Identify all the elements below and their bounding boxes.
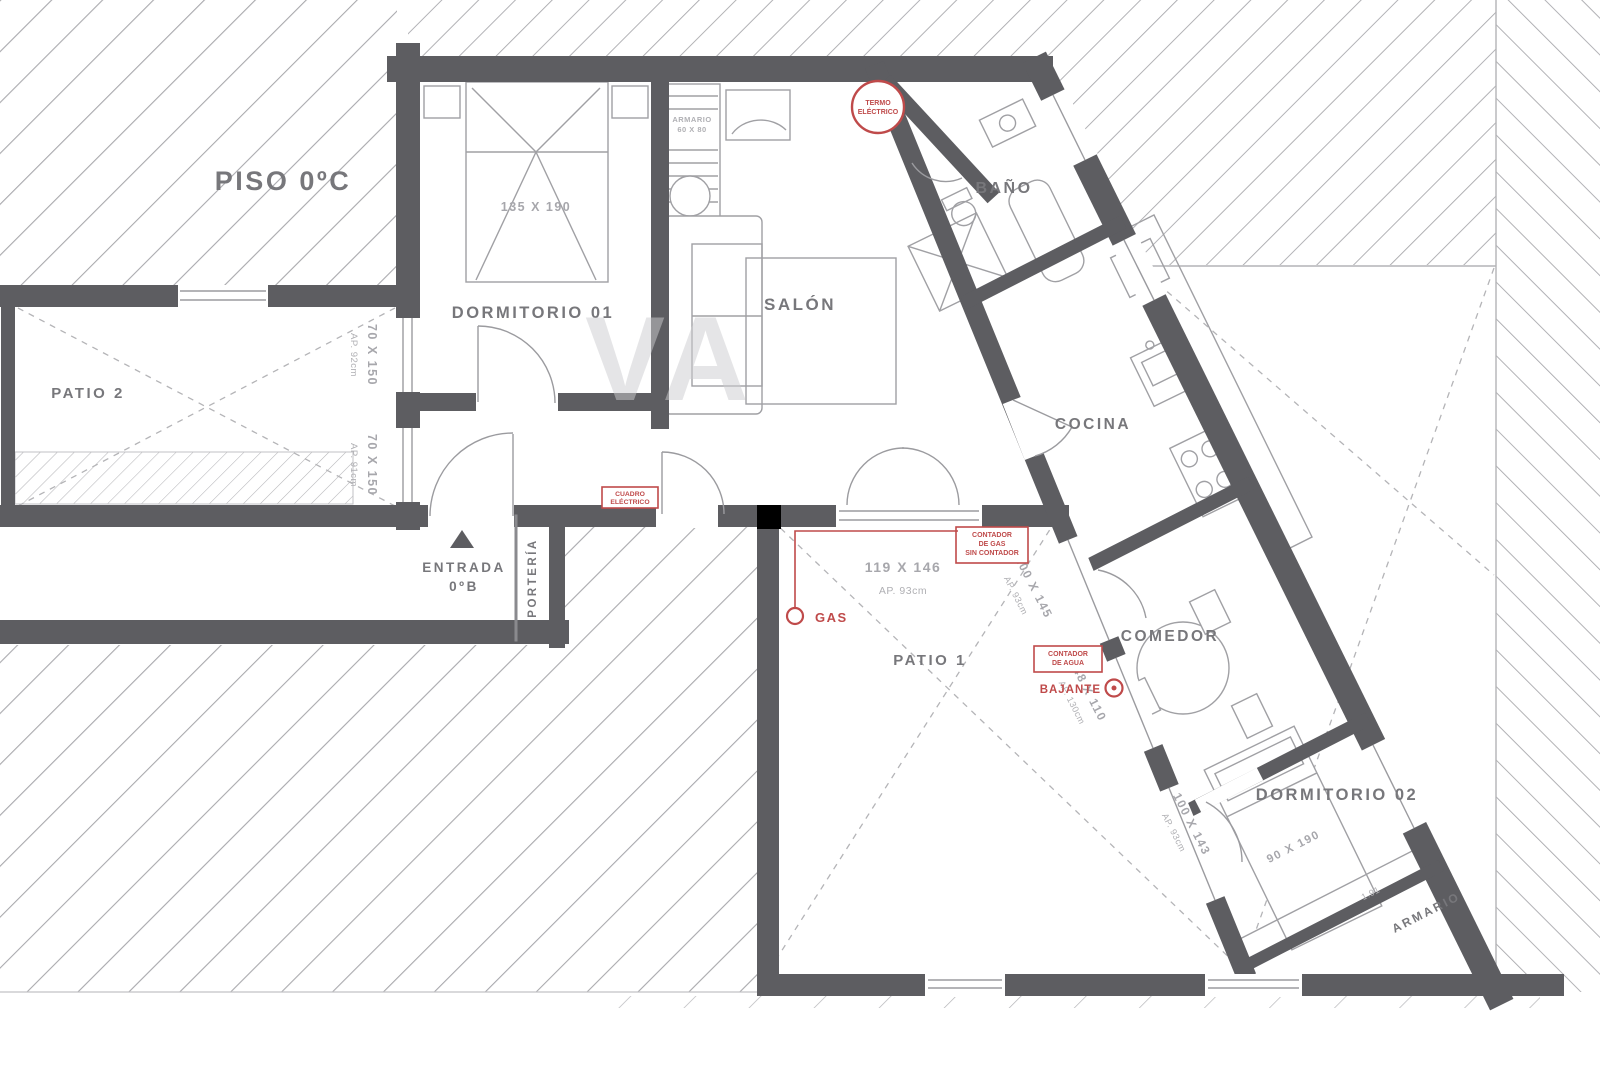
closet-label-line1: ARMARIO — [672, 115, 711, 124]
watermark: VA — [585, 292, 755, 426]
hatch-patio2-strip — [15, 452, 353, 504]
svg-text:ELÉCTRICO: ELÉCTRICO — [610, 497, 649, 506]
bajante-label: BAJANTE — [1040, 684, 1101, 696]
room-label-patio2: PATIO 2 — [51, 385, 125, 402]
room-label-patio1: PATIO 1 — [893, 652, 967, 669]
closet-label-line2: 60 X 80 — [677, 125, 706, 134]
window-w2-ap: AP. 91cm — [348, 443, 359, 487]
svg-text:CONTADOR: CONTADOR — [972, 532, 1012, 539]
svg-text:DE GAS: DE GAS — [979, 541, 1006, 548]
window-w3-size: 119 X 146 — [865, 559, 942, 575]
bed1-size-label: 135 X 190 — [501, 200, 572, 214]
nightstand-right — [612, 86, 648, 118]
room-label-porteria: PORTERÍA — [526, 538, 539, 617]
svg-text:DE AGUA: DE AGUA — [1052, 660, 1084, 667]
nightstand-left — [424, 86, 460, 118]
window-w1-size: 70 X 150 — [365, 324, 379, 386]
svg-text:TERMO: TERMO — [865, 100, 891, 107]
tick-row-bottom — [575, 996, 1540, 1008]
entrada-label-line2: 0ºB — [449, 579, 479, 594]
entrada-label-line1: ENTRADA — [422, 560, 506, 575]
hatch-bottom-left — [0, 527, 757, 992]
termo-electrico-badge: TERMO ELÉCTRICO — [852, 81, 904, 133]
window-w2-size: 70 X 150 — [365, 434, 379, 496]
gas-meter-badge: CONTADOR DE GAS SIN CONTADOR — [956, 527, 1028, 563]
tv-unit — [726, 90, 790, 140]
room-label-dormitorio-02: DORMITORIO 02 — [1256, 786, 1418, 804]
room-label-salon: SALÓN — [764, 295, 836, 314]
svg-text:CONTADOR: CONTADOR — [1048, 651, 1088, 658]
svg-text:CUADRO: CUADRO — [615, 491, 645, 498]
hatch-top-left — [0, 0, 397, 288]
hatch-right-strip — [1496, 0, 1600, 992]
window-w1-ap: AP. 92cm — [348, 333, 359, 377]
window-w3-ap: AP. 93cm — [879, 585, 927, 597]
cuadro-electrico-badge: CUADRO ELÉCTRICO — [602, 487, 658, 508]
room-label-bano: BAÑO — [975, 177, 1032, 197]
gas-label: GAS — [815, 610, 848, 625]
room-label-comedor: COMEDOR — [1121, 628, 1219, 645]
page-title: PISO 0ºC — [215, 166, 351, 196]
svg-text:SIN CONTADOR: SIN CONTADOR — [965, 550, 1019, 557]
water-meter-badge: CONTADOR DE AGUA — [1034, 646, 1102, 672]
floor-plan-page: PISO 0ºC DORMITORIO 01 SALÓN BAÑO COCINA… — [0, 0, 1600, 1066]
room-label-cocina: COCINA — [1055, 416, 1131, 433]
wall-corner-patio1 — [757, 505, 781, 529]
side-table — [670, 176, 710, 216]
floor-plan: PISO 0ºC DORMITORIO 01 SALÓN BAÑO COCINA… — [0, 0, 1600, 1066]
svg-text:ELÉCTRICO: ELÉCTRICO — [858, 107, 899, 116]
bed-dormitorio-01 — [466, 82, 608, 282]
